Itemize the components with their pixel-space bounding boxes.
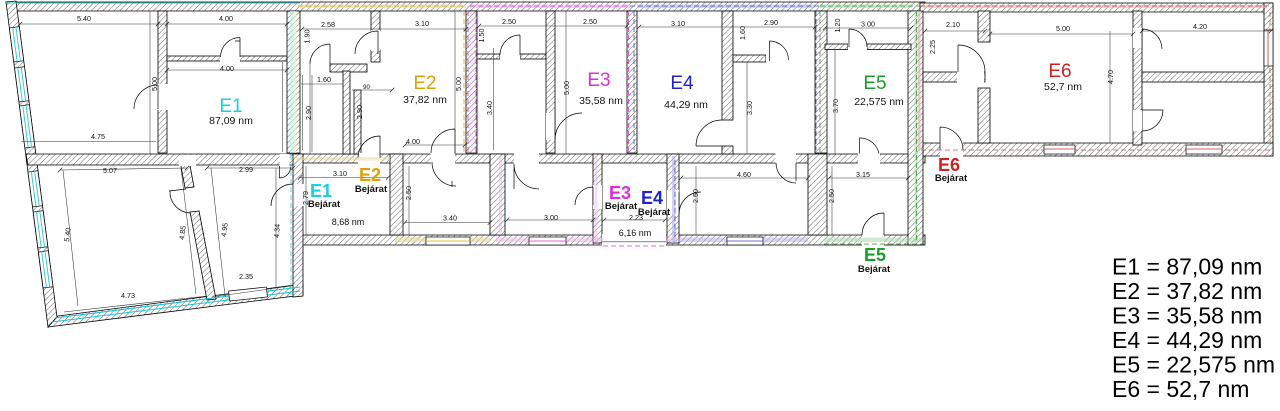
svg-text:5.00: 5.00 bbox=[454, 77, 463, 91]
svg-text:8,68 nm: 8,68 nm bbox=[332, 217, 365, 227]
svg-text:4.95: 4.95 bbox=[219, 222, 230, 237]
svg-text:4.00: 4.00 bbox=[220, 64, 234, 73]
svg-text:3.00: 3.00 bbox=[861, 20, 875, 29]
svg-text:2.50: 2.50 bbox=[404, 186, 413, 200]
svg-text:3.10: 3.10 bbox=[333, 169, 347, 178]
svg-text:4.85: 4.85 bbox=[177, 225, 188, 240]
svg-text:5.00: 5.00 bbox=[150, 77, 159, 91]
svg-text:1.60: 1.60 bbox=[738, 26, 747, 40]
svg-text:E1 = 87,09 nm: E1 = 87,09 nm bbox=[1112, 254, 1262, 280]
svg-text:5.40: 5.40 bbox=[77, 14, 91, 23]
svg-text:37,82 nm: 37,82 nm bbox=[403, 94, 447, 106]
svg-text:4.73: 4.73 bbox=[121, 291, 135, 300]
svg-text:4.70: 4.70 bbox=[1106, 70, 1115, 84]
svg-text:Bejárat: Bejárat bbox=[638, 207, 671, 218]
svg-text:E2: E2 bbox=[413, 73, 436, 94]
svg-text:1.60: 1.60 bbox=[317, 75, 331, 84]
svg-text:E3: E3 bbox=[609, 183, 631, 203]
svg-text:2.50: 2.50 bbox=[691, 189, 700, 203]
svg-text:1.90: 1.90 bbox=[303, 30, 312, 44]
svg-text:E6 = 52,7 nm: E6 = 52,7 nm bbox=[1112, 376, 1249, 402]
svg-text:E1: E1 bbox=[219, 96, 242, 117]
svg-text:3.40: 3.40 bbox=[443, 214, 457, 223]
svg-text:2.90: 2.90 bbox=[304, 106, 313, 120]
svg-text:Bejárat: Bejárat bbox=[935, 173, 968, 184]
svg-text:1.20: 1.20 bbox=[833, 19, 842, 33]
svg-text:3.30: 3.30 bbox=[745, 101, 754, 115]
svg-text:E3 = 35,58 nm: E3 = 35,58 nm bbox=[1112, 303, 1262, 329]
svg-text:E5 = 22,575 nm: E5 = 22,575 nm bbox=[1112, 352, 1275, 378]
svg-text:E4: E4 bbox=[641, 188, 663, 208]
svg-text:E3: E3 bbox=[587, 70, 610, 91]
svg-text:87,09 nm: 87,09 nm bbox=[209, 115, 253, 127]
svg-text:4.00: 4.00 bbox=[219, 14, 233, 23]
svg-text:2.90: 2.90 bbox=[764, 18, 778, 27]
svg-text:3.10: 3.10 bbox=[671, 19, 685, 28]
svg-text:4.20: 4.20 bbox=[1193, 22, 1207, 31]
svg-text:Bejárat: Bejárat bbox=[355, 184, 388, 195]
svg-text:E4 = 44,29 nm: E4 = 44,29 nm bbox=[1112, 327, 1262, 353]
svg-text:E6: E6 bbox=[1048, 61, 1071, 82]
svg-text:E5: E5 bbox=[864, 245, 886, 265]
svg-text:2.50: 2.50 bbox=[583, 17, 597, 26]
svg-text:1.50: 1.50 bbox=[477, 29, 486, 43]
svg-text:2.25: 2.25 bbox=[928, 40, 937, 54]
svg-text:6,16 nm: 6,16 nm bbox=[619, 228, 652, 238]
svg-text:3.40: 3.40 bbox=[485, 101, 494, 115]
svg-text:Bejárat: Bejárat bbox=[605, 201, 638, 212]
svg-text:5.00: 5.00 bbox=[1056, 24, 1070, 33]
svg-text:E4: E4 bbox=[670, 73, 694, 94]
svg-text:44,29 nm: 44,29 nm bbox=[664, 99, 708, 111]
svg-text:E6: E6 bbox=[938, 155, 960, 175]
svg-text:2.99: 2.99 bbox=[239, 165, 253, 174]
svg-text:E2: E2 bbox=[359, 165, 381, 185]
svg-text:4.60: 4.60 bbox=[737, 170, 751, 179]
svg-text:52,7 nm: 52,7 nm bbox=[1044, 81, 1082, 93]
svg-text:E1: E1 bbox=[310, 181, 332, 201]
svg-text:E5: E5 bbox=[863, 73, 886, 94]
svg-text:5.00: 5.00 bbox=[562, 81, 571, 95]
svg-text:3.00: 3.00 bbox=[544, 213, 558, 222]
svg-text:4.34: 4.34 bbox=[272, 224, 282, 238]
svg-text:Bejárat: Bejárat bbox=[858, 264, 891, 275]
svg-text:2.50: 2.50 bbox=[502, 17, 516, 26]
svg-text:3.10: 3.10 bbox=[415, 19, 429, 28]
svg-text:4.00: 4.00 bbox=[406, 137, 420, 146]
svg-text:3.70: 3.70 bbox=[831, 99, 840, 113]
svg-text:35,58 nm: 35,58 nm bbox=[579, 95, 623, 107]
svg-text:90: 90 bbox=[363, 84, 370, 91]
svg-text:5.07: 5.07 bbox=[103, 166, 117, 175]
svg-text:5.40: 5.40 bbox=[62, 227, 73, 242]
svg-text:2.50: 2.50 bbox=[827, 189, 836, 203]
svg-text:2.10: 2.10 bbox=[946, 20, 960, 29]
svg-text:E2 = 37,82 nm: E2 = 37,82 nm bbox=[1112, 278, 1262, 304]
svg-text:2.35: 2.35 bbox=[239, 272, 253, 281]
svg-text:22,575 nm: 22,575 nm bbox=[854, 96, 904, 108]
svg-text:2.90: 2.90 bbox=[355, 105, 364, 119]
svg-text:4.75: 4.75 bbox=[91, 132, 105, 141]
svg-text:Bejárat: Bejárat bbox=[308, 199, 341, 210]
svg-text:3.15: 3.15 bbox=[856, 170, 870, 179]
svg-text:2.58: 2.58 bbox=[321, 20, 335, 29]
